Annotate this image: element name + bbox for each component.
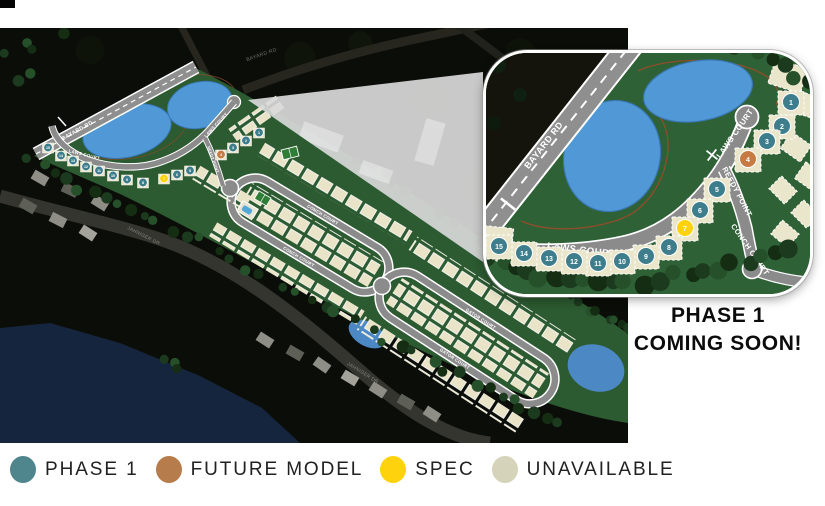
legend-label: PHASE 1: [45, 459, 139, 481]
lot-number: 10: [111, 174, 115, 178]
tree: [51, 168, 60, 177]
site-plan-page: { "map": { "labels": { "bayard_rd": "BAY…: [0, 0, 825, 506]
lot-number: 2: [780, 124, 784, 131]
lot-number: 3: [232, 146, 234, 150]
tree: [215, 247, 223, 255]
tree: [352, 157, 361, 166]
legend-item-spec: SPEC: [380, 456, 474, 483]
tree: [786, 71, 800, 85]
phase1-inset-map[interactable]: BAYARD RD LAWS COURT LAWS COURT REEDY PO…: [483, 50, 813, 297]
lot-number: 12: [570, 259, 578, 266]
tree: [60, 172, 73, 185]
tree: [58, 28, 70, 39]
lot-number: 6: [698, 208, 702, 215]
lot-number: 6: [176, 173, 178, 177]
tree: [25, 68, 35, 78]
tree: [125, 204, 137, 216]
legend: PHASE 1 FUTURE MODEL SPEC UNAVAILABLE: [10, 456, 675, 483]
tree: [113, 199, 122, 208]
lot-number: 7: [683, 226, 687, 233]
tree: [754, 249, 768, 263]
tree: [291, 288, 299, 296]
lot-number: 7: [163, 177, 165, 181]
lot-number: 3: [765, 139, 769, 146]
legend-item-unavailable: UNAVAILABLE: [492, 456, 675, 483]
lot-number: 15: [46, 146, 50, 150]
lot-number: 13: [545, 256, 553, 263]
tree: [71, 185, 82, 196]
lot-number: 12: [84, 165, 88, 169]
lot-number: 8: [142, 181, 144, 185]
tree: [574, 298, 583, 307]
tree: [510, 394, 520, 404]
legend-item-future-model: FUTURE MODEL: [156, 456, 364, 483]
tree: [0, 49, 9, 58]
map-corner-fragment: [0, 0, 15, 8]
tree: [434, 206, 446, 218]
tree: [40, 159, 50, 169]
lot-number: 11: [594, 261, 602, 268]
lot-number: 8: [667, 245, 671, 252]
future-model-swatch-icon: [156, 456, 182, 483]
tree: [240, 265, 250, 275]
lot-number: 9: [644, 254, 648, 261]
tree: [615, 273, 631, 289]
tree: [528, 407, 541, 420]
legend-item-phase1: PHASE 1: [10, 456, 139, 483]
tree: [552, 418, 562, 428]
tree: [437, 367, 447, 377]
lot-number: 15: [495, 244, 503, 251]
lot-number: 4: [746, 157, 750, 164]
tree: [351, 314, 360, 323]
legend-label: FUTURE MODEL: [191, 459, 364, 481]
tree: [373, 166, 383, 176]
tree: [27, 45, 36, 54]
tree: [695, 263, 711, 279]
tree: [148, 216, 157, 225]
tree: [463, 228, 471, 236]
tree: [224, 254, 233, 263]
legend-label: UNAVAILABLE: [527, 459, 675, 481]
lot-number: 4: [220, 153, 222, 157]
lot-number: 1: [789, 100, 793, 107]
tree: [195, 233, 204, 242]
lot-number: 9: [126, 178, 128, 182]
tree: [472, 380, 484, 392]
lot-number: 5: [715, 187, 719, 194]
tree: [160, 355, 169, 364]
tree: [407, 346, 415, 354]
tree: [172, 364, 181, 373]
lot-number: 1: [258, 131, 260, 135]
tree: [22, 154, 31, 163]
tree: [513, 403, 524, 414]
unavailable-swatch-icon: [492, 456, 518, 483]
tree: [430, 356, 442, 368]
tree: [499, 393, 508, 402]
tree: [399, 186, 411, 198]
tree: [101, 192, 112, 203]
spec-swatch-icon: [380, 456, 406, 483]
lot-number: 5: [189, 169, 191, 173]
tree: [141, 212, 149, 220]
tree: [449, 217, 460, 228]
lot-number: 14: [520, 251, 528, 258]
lot-number: 11: [97, 169, 101, 173]
tree: [278, 283, 287, 292]
phase1-callout: PHASE 1 COMING SOON!: [593, 302, 825, 358]
tree: [370, 325, 379, 334]
tree: [779, 240, 798, 259]
tree: [720, 254, 738, 272]
tree: [377, 338, 385, 346]
tree: [542, 413, 553, 424]
tree: [168, 226, 180, 238]
tree: [665, 265, 680, 280]
phase1-swatch-icon: [10, 456, 36, 483]
tree: [13, 75, 25, 87]
tree: [253, 269, 263, 279]
lot-number: 2: [245, 139, 247, 143]
tree: [454, 366, 466, 378]
callout-line2: COMING SOON!: [593, 330, 825, 358]
lot-number: 13: [71, 159, 75, 163]
inset-svg: BAYARD RD LAWS COURT LAWS COURT REEDY PO…: [486, 53, 810, 294]
tree: [308, 296, 317, 305]
callout-line1: PHASE 1: [593, 302, 825, 330]
lot-number: 10: [618, 259, 626, 266]
tree: [182, 231, 193, 242]
legend-label: SPEC: [415, 459, 474, 481]
lot-number: 14: [59, 154, 63, 158]
tree: [778, 57, 794, 73]
tree: [413, 202, 423, 212]
tree: [387, 178, 396, 187]
tree: [327, 305, 339, 317]
tree: [486, 382, 496, 392]
tree: [89, 186, 102, 199]
